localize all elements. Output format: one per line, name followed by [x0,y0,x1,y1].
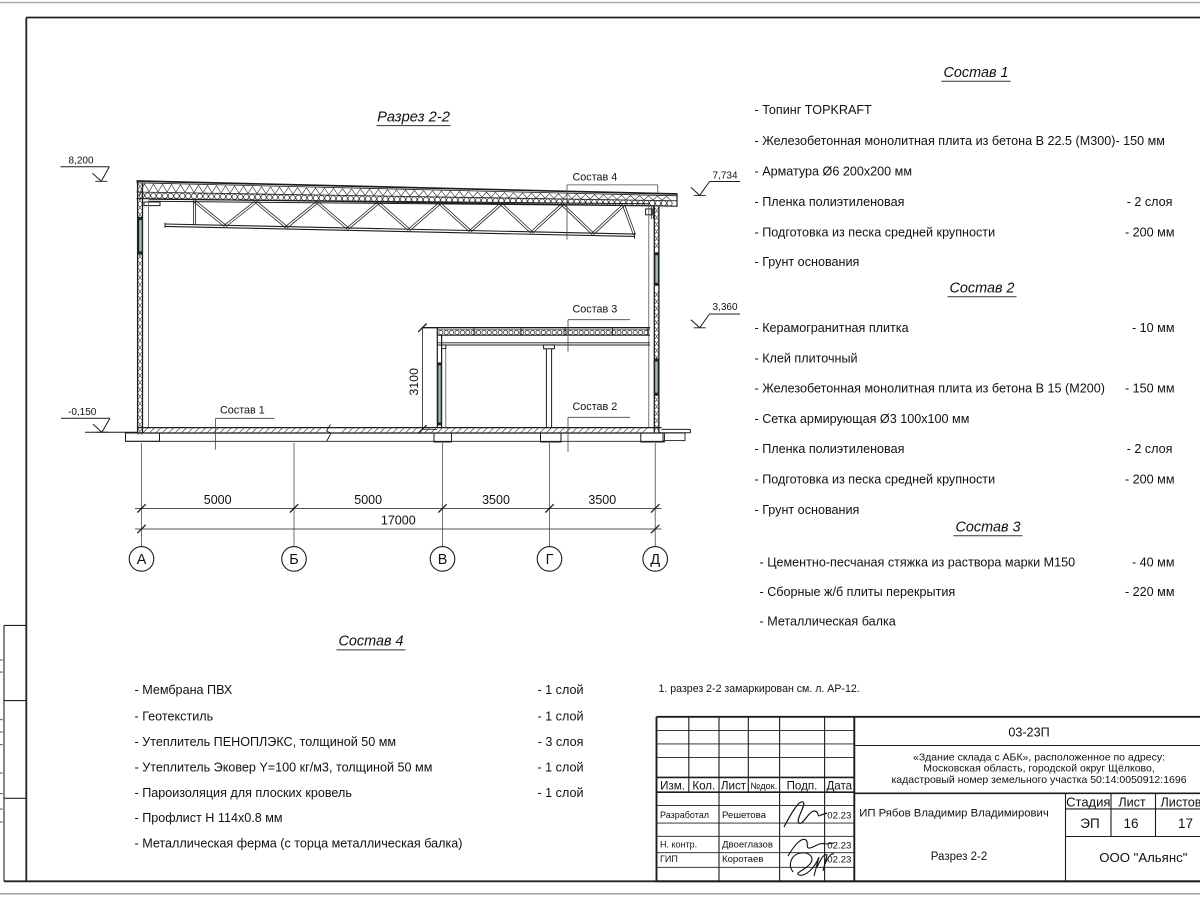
svg-text:- Топинг TOPKRAFT: - Топинг TOPKRAFT [755,103,873,117]
svg-text:Г: Г [546,552,554,568]
svg-text:- Железобетонная монолитная п: - Железобетонная монолитная плита из бет… [755,134,1165,148]
svg-text:- Сборные ж/б плиты перекрытия: - Сборные ж/б плиты перекрытия [760,585,956,599]
svg-text:Решетова: Решетова [722,810,767,821]
svg-text:Коротаев: Коротаев [722,854,763,865]
svg-text:- 200 мм: - 200 мм [1125,226,1175,240]
svg-text:- 3 слоя: - 3 слоя [538,735,584,749]
svg-text:№док.: №док. [750,781,777,791]
svg-text:Б: Б [289,552,298,568]
svg-text:3100: 3100 [407,368,421,396]
svg-text:кадастровый номер земельного у: кадастровый номер земельного участка 50:… [891,774,1186,786]
svg-text:03-23П: 03-23П [1008,726,1049,740]
svg-text:- Металлическая ферма (с торца: - Металлическая ферма (с торца металличе… [135,837,463,851]
svg-text:- Металлическая балка: - Металлическая балка [760,615,896,629]
svg-text:Состав 4: Состав 4 [573,171,618,183]
svg-text:Изм.: Изм. [660,780,685,793]
svg-text:- Утеплитель ПЕНОПЛЭКС, толщин: - Утеплитель ПЕНОПЛЭКС, толщиной 50 мм [135,735,397,749]
svg-text:3,360: 3,360 [713,302,738,313]
svg-text:- 220 мм: - 220 мм [1125,585,1175,599]
svg-text:-0,150: -0,150 [68,407,97,418]
svg-text:- Цементно-песчаная стяжка из: - Цементно-песчаная стяжка из раствора м… [760,556,1076,570]
svg-text:А: А [137,552,147,568]
svg-text:- 150 мм: - 150 мм [1125,382,1175,396]
svg-text:Лист: Лист [1118,796,1146,810]
svg-text:- Подготовка из песка средней: - Подготовка из песка средней крупности [755,473,996,487]
svg-text:В: В [438,552,448,568]
svg-text:3500: 3500 [482,493,510,507]
svg-text:- 1 слой: - 1 слой [537,761,583,775]
svg-text:Кол.: Кол. [692,780,715,793]
svg-text:3500: 3500 [588,493,616,507]
svg-text:Состав 1: Состав 1 [220,405,265,417]
svg-text:- Подготовка из песка средней: - Подготовка из песка средней крупности [755,226,996,240]
svg-text:02.23: 02.23 [827,855,851,866]
svg-text:17000: 17000 [381,514,416,528]
svg-text:Разрез 2-2: Разрез 2-2 [931,851,987,863]
svg-text:- 200 мм: - 200 мм [1125,473,1175,487]
svg-text:02.23: 02.23 [827,811,851,822]
svg-text:- 40 мм: - 40 мм [1132,556,1175,570]
svg-text:5000: 5000 [354,493,382,507]
svg-text:- Клей плиточный: - Клей плиточный [755,351,858,365]
svg-text:ООО "Альянс": ООО "Альянс" [1099,850,1187,865]
svg-text:02.23: 02.23 [827,840,851,851]
svg-text:Д: Д [650,552,660,568]
svg-text:- Железобетонная монолитная п: - Железобетонная монолитная плита из бет… [755,382,1105,396]
svg-text:ЭП: ЭП [1080,816,1099,831]
svg-text:Состав 1: Состав 1 [944,65,1009,81]
svg-text:Состав 2: Состав 2 [950,281,1015,297]
svg-text:Состав 2: Состав 2 [573,401,618,413]
svg-text:- Пленка полиэтиленовая: - Пленка полиэтиленовая [755,195,905,209]
svg-text:- Сетка армирующая Ø3 100х100: - Сетка армирующая Ø3 100х100 мм [755,412,970,426]
svg-text:- 2 слоя: - 2 слоя [1127,195,1173,209]
svg-text:Листов: Листов [1161,796,1200,810]
svg-text:- Арматура Ø6 200х200 мм: - Арматура Ø6 200х200 мм [755,165,913,179]
svg-text:ИП Рябов Владимир Владимирович: ИП Рябов Владимир Владимирович [859,808,1049,820]
svg-text:- Пароизоляция для плоских кро: - Пароизоляция для плоских кровель [135,786,353,800]
svg-text:- Грунт основания: - Грунт основания [755,255,860,269]
svg-text:- 10 мм: - 10 мм [1132,321,1175,335]
svg-text:- Геотекстиль: - Геотекстиль [135,710,214,724]
svg-text:8,200: 8,200 [69,156,94,167]
svg-text:7,734: 7,734 [713,170,738,181]
svg-text:Разрез 2-2: Разрез 2-2 [377,110,450,126]
svg-text:5000: 5000 [204,493,232,507]
svg-text:- 2 слоя: - 2 слоя [1127,442,1173,456]
svg-text:- Пленка полиэтиленовая: - Пленка полиэтиленовая [755,442,905,456]
svg-text:ГИП: ГИП [660,854,678,864]
svg-text:Состав 3: Состав 3 [956,520,1021,536]
svg-text:Состав 3: Состав 3 [573,303,618,315]
svg-text:Стадия: Стадия [1066,795,1110,810]
svg-text:1. разрез 2-2 замаркирован см.: 1. разрез 2-2 замаркирован см. л. АР-12. [659,683,860,695]
svg-text:Подп.: Подп. [787,780,818,793]
svg-text:- Утеплитель Эковер Y=100 кг/м: - Утеплитель Эковер Y=100 кг/м3, толщино… [135,761,433,775]
svg-text:17: 17 [1178,816,1193,831]
svg-text:- Грунт основания: - Грунт основания [755,503,860,517]
svg-text:Московская область, городской: Московская область, городской округ Щёлк… [923,763,1155,775]
svg-text:- Керамогранитная плитка: - Керамогранитная плитка [755,321,909,335]
svg-text:- Мембрана ПВХ: - Мембрана ПВХ [135,683,233,697]
svg-text:Дата: Дата [826,780,852,793]
svg-text:Н. контр.: Н. контр. [660,840,697,850]
svg-text:- Профлист Н 114х0.8 мм: - Профлист Н 114х0.8 мм [135,811,283,825]
svg-text:- 1 слой: - 1 слой [537,786,583,800]
svg-text:- 1 слой: - 1 слой [537,683,583,697]
svg-text:Двоеглазов: Двоеглазов [722,840,773,851]
svg-text:16: 16 [1123,816,1138,831]
svg-text:Лист: Лист [721,780,747,793]
svg-text:Разработал: Разработал [660,810,709,820]
svg-text:- 1 слой: - 1 слой [537,710,583,724]
svg-text:Состав 4: Состав 4 [339,634,404,650]
